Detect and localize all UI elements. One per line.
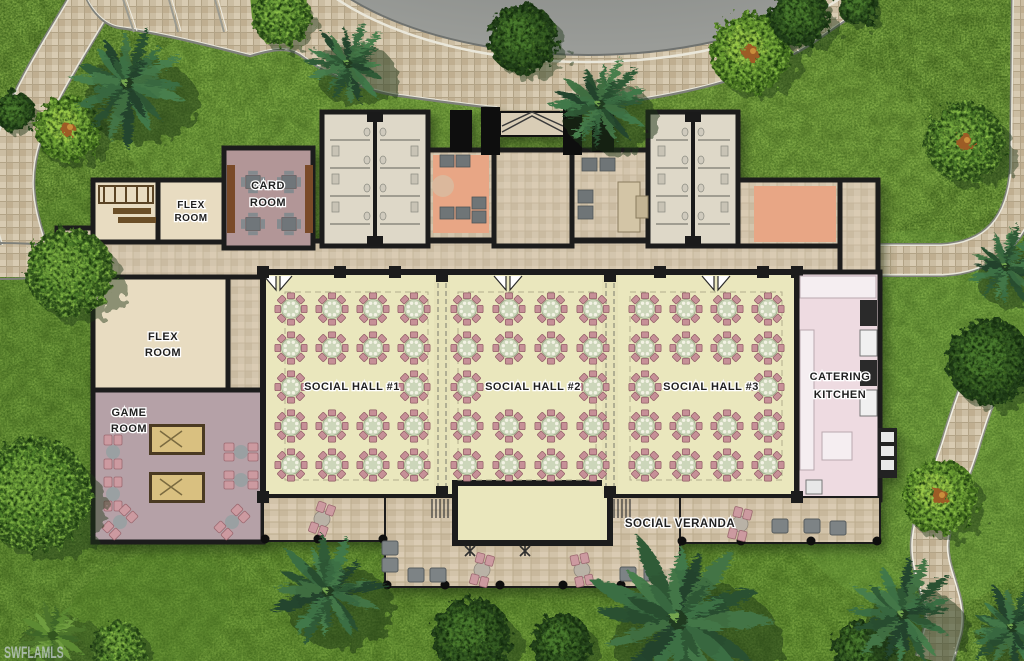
svg-text:CARD: CARD bbox=[251, 180, 285, 192]
svg-text:SOCIAL HALL #1: SOCIAL HALL #1 bbox=[304, 381, 400, 393]
svg-text:ROOM: ROOM bbox=[250, 197, 286, 209]
svg-text:FLEX: FLEX bbox=[148, 331, 178, 343]
svg-text:GAME: GAME bbox=[112, 407, 147, 419]
svg-text:KITCHEN: KITCHEN bbox=[814, 389, 866, 401]
svg-text:SOCIAL VERANDA: SOCIAL VERANDA bbox=[625, 518, 735, 530]
svg-text:SWFLAMLS: SWFLAMLS bbox=[4, 642, 64, 661]
svg-text:ROOM: ROOM bbox=[174, 213, 207, 224]
svg-text:FLEX: FLEX bbox=[177, 200, 205, 211]
svg-text:SOCIAL HALL #3: SOCIAL HALL #3 bbox=[663, 381, 759, 393]
svg-text:SOCIAL HALL #2: SOCIAL HALL #2 bbox=[485, 381, 581, 393]
svg-text:ROOM: ROOM bbox=[111, 423, 147, 435]
svg-text:CATERING: CATERING bbox=[810, 371, 871, 383]
svg-text:ROOM: ROOM bbox=[145, 347, 181, 359]
